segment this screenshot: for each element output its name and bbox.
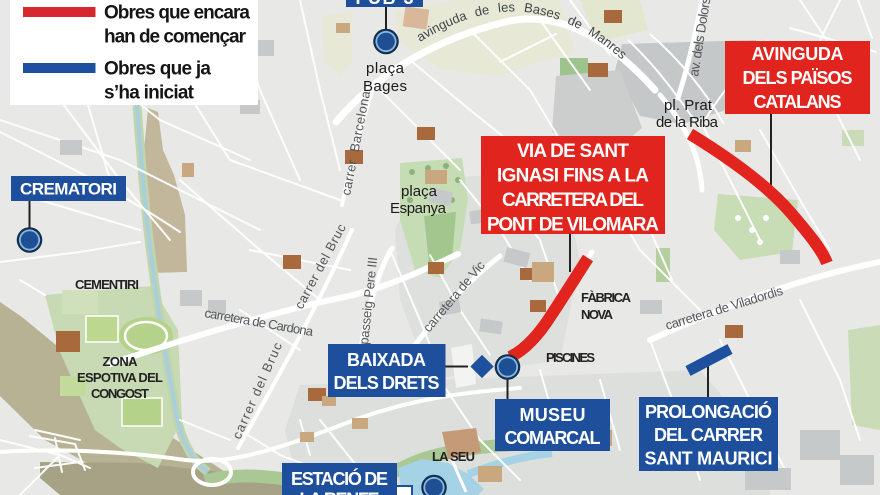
svg-text:SANT MAURICI: SANT MAURICI	[645, 449, 773, 469]
svg-text:NOVA: NOVA	[581, 307, 614, 322]
svg-text:IGNASI FINS A LA: IGNASI FINS A LA	[497, 166, 649, 187]
svg-text:CREMATORI: CREMATORI	[20, 180, 117, 199]
svg-text:FUB 3: FUB 3	[356, 0, 414, 8]
svg-text:plaça: plaça	[401, 183, 438, 200]
svg-text:ESTACIÓ DE: ESTACIÓ DE	[291, 468, 388, 489]
svg-text:BAIXADA: BAIXADA	[347, 350, 426, 370]
svg-text:FÀBRICA: FÀBRICA	[581, 290, 632, 305]
svg-text:plaça: plaça	[366, 60, 405, 77]
svg-text:CATALANS: CATALANS	[754, 92, 842, 112]
svg-text:CARRETERA DEL: CARRETERA DEL	[502, 190, 644, 211]
svg-text:Obres que encara: Obres que encara	[104, 3, 250, 24]
svg-text:LA RENFE: LA RENFE	[300, 490, 380, 495]
svg-text:Obres que ja: Obres que ja	[104, 59, 211, 80]
svg-text:DELS DRETS: DELS DRETS	[334, 373, 440, 393]
svg-text:pl. Prat: pl. Prat	[664, 97, 713, 114]
svg-text:CEMENTIRI: CEMENTIRI	[75, 277, 139, 292]
svg-text:s’ha iniciat: s’ha iniciat	[104, 83, 195, 104]
svg-text:ZONA: ZONA	[103, 354, 139, 369]
svg-text:han de començar: han de començar	[104, 27, 247, 48]
svg-text:ESPOTIVA DEL: ESPOTIVA DEL	[77, 370, 163, 385]
svg-text:CONGOST: CONGOST	[91, 386, 149, 401]
svg-text:PISCINES: PISCINES	[546, 350, 595, 365]
svg-text:MUSEU: MUSEU	[520, 405, 586, 425]
svg-text:PONT DE VILOMARA: PONT DE VILOMARA	[487, 215, 659, 236]
svg-text:DELS PAÏSOS: DELS PAÏSOS	[743, 68, 853, 88]
svg-text:Bages: Bages	[363, 78, 407, 95]
svg-text:PROLONGACIÓ: PROLONGACIÓ	[645, 401, 772, 422]
svg-text:LA SEU: LA SEU	[432, 449, 475, 464]
svg-text:Espanya: Espanya	[390, 200, 447, 217]
svg-text:COMARCAL: COMARCAL	[505, 428, 601, 448]
svg-text:DEL CARRER: DEL CARRER	[654, 425, 763, 445]
svg-text:AVINGUDA: AVINGUDA	[752, 44, 844, 64]
svg-text:VIA DE SANT: VIA DE SANT	[517, 141, 629, 162]
svg-text:de la Riba: de la Riba	[656, 114, 719, 131]
